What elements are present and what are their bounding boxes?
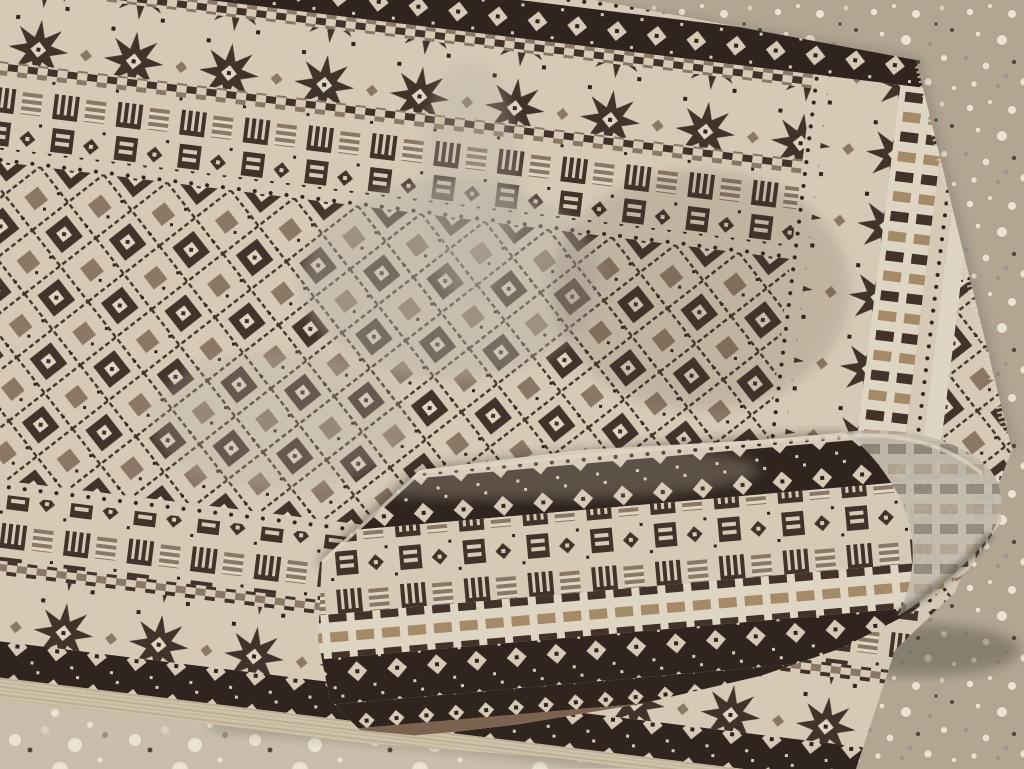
rug-photograph: Antique hand-woven tribal rug, partially… [0,0,1024,769]
photo-canvas: Antique hand-woven tribal rug, partially… [0,0,1024,769]
worn-patch [150,350,410,490]
dense-pile-patch [550,170,850,410]
worn-streak [420,60,520,300]
